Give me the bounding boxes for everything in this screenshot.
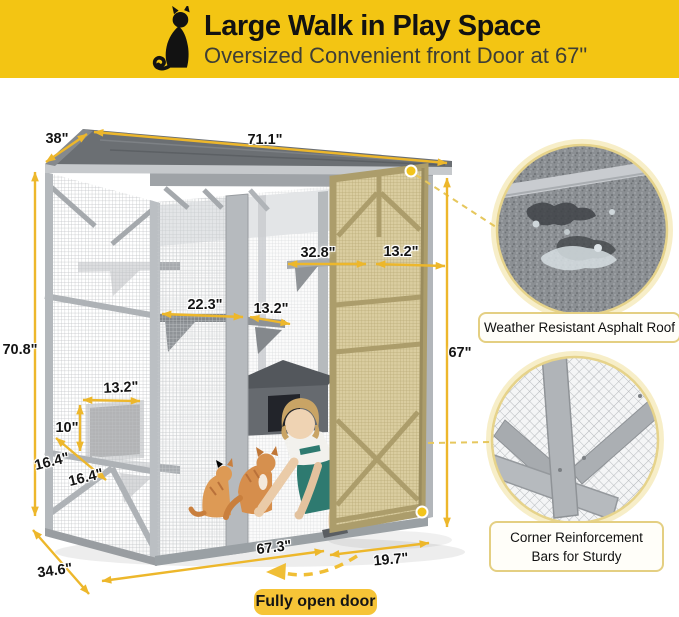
- dim-cubby-width-arrow: [83, 400, 140, 401]
- cat-silhouette-icon: [151, 6, 197, 74]
- dim-cubby-width-label: 13.2": [103, 379, 139, 397]
- dim-roof-depth-label: 38": [45, 131, 68, 147]
- callout-corner-circle: [489, 353, 664, 527]
- dim-middle-shelf-small-label: 13.2": [253, 301, 288, 317]
- dim-cubby-height-label: 10": [55, 420, 78, 436]
- roof-marker-dot: [406, 166, 417, 177]
- dim-door-width-label: 13.2": [383, 244, 418, 260]
- banner-title: Large Walk in Play Space: [204, 10, 541, 43]
- corner-callout-label: Corner Reinforcement Bars for Sturdy: [489, 521, 664, 572]
- roof-callout-text: Weather Resistant Asphalt Roof: [484, 318, 675, 337]
- door-marker-dot: [417, 507, 428, 518]
- callout-roof-circle: [494, 142, 672, 320]
- dim-upper-shelf-label: 32.8": [300, 245, 335, 261]
- left-side-panel: [45, 172, 160, 566]
- corner-callout-line2: Bars for Sturdy: [531, 547, 621, 566]
- product-infographic: Large Walk in Play Space Oversized Conve…: [0, 0, 679, 617]
- dim-middle-shelf-label: 22.3": [187, 297, 222, 313]
- open-front-door: [333, 167, 425, 529]
- dim-total-height-label: 70.8": [2, 342, 37, 358]
- banner-subtitle: Oversized Convenient front Door at 67": [204, 43, 587, 69]
- fully-open-door-tag: Fully open door: [254, 589, 377, 615]
- roof-callout-label: Weather Resistant Asphalt Roof: [478, 312, 679, 343]
- corner-callout-line1: Corner Reinforcement: [510, 528, 643, 547]
- dim-front-door-height-label: 67": [448, 345, 471, 361]
- dim-roof-width-label: 71.1": [247, 132, 282, 148]
- header-banner: Large Walk in Play Space Oversized Conve…: [0, 0, 679, 78]
- dim-door-open-label: 19.7": [373, 551, 409, 570]
- fully-open-door-text: Fully open door: [256, 593, 376, 611]
